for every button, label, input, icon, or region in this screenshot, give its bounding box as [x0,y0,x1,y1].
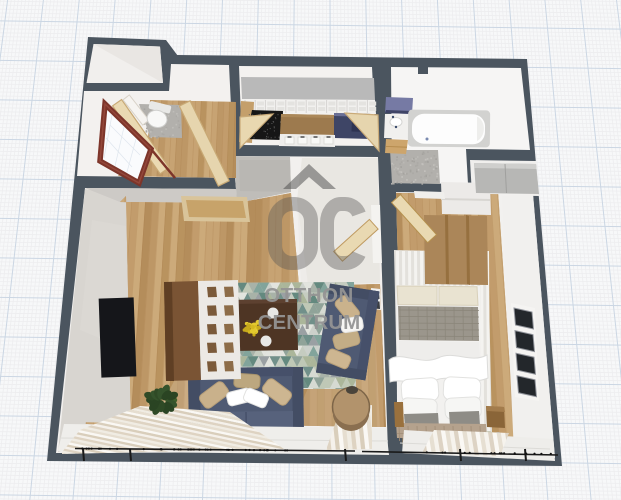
svg-text:OTTHON: OTTHON [264,284,354,307]
svg-text:CENTRUM: CENTRUM [258,311,361,334]
